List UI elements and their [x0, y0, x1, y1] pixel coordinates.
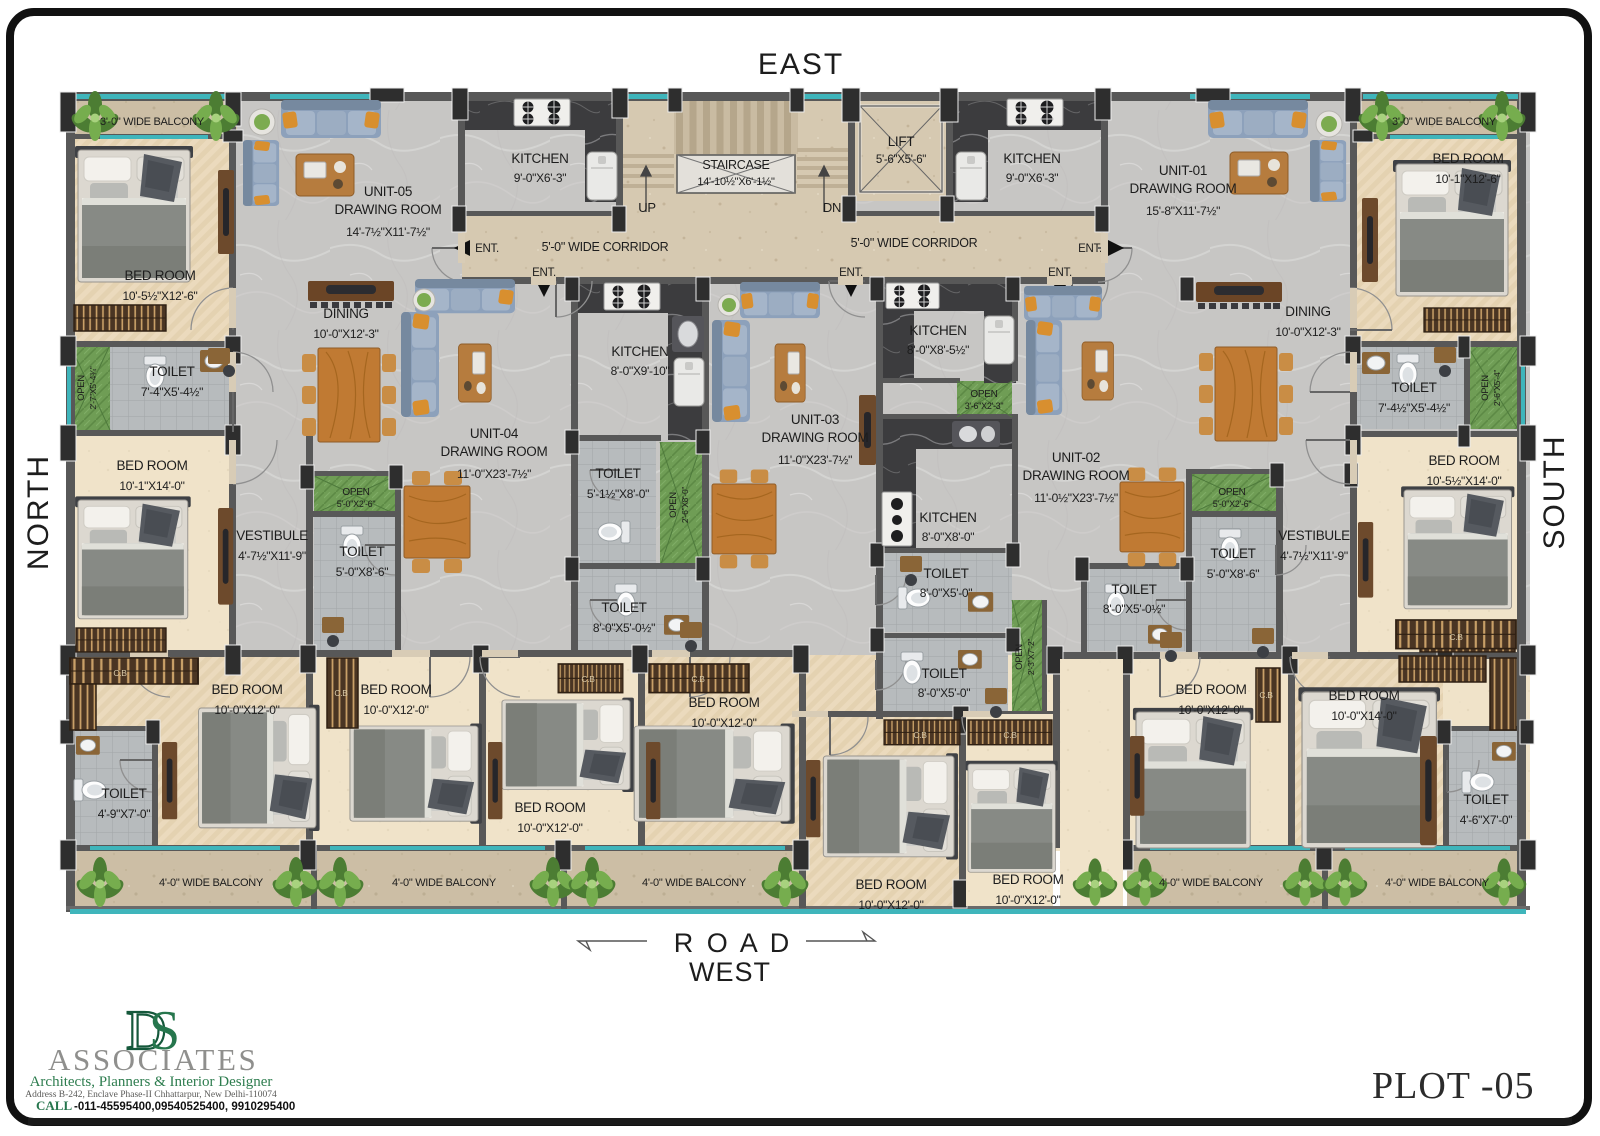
svg-text:5'-1½"X8'-0": 5'-1½"X8'-0": [587, 487, 649, 501]
svg-text:TOILET: TOILET: [923, 566, 968, 581]
svg-text:5'-0" WIDE CORRIDOR: 5'-0" WIDE CORRIDOR: [851, 236, 978, 250]
svg-text:11'-0"X23'-7½": 11'-0"X23'-7½": [457, 467, 531, 481]
svg-text:TOILET: TOILET: [1391, 380, 1436, 395]
svg-text:C.B: C.B: [113, 668, 127, 678]
svg-text:C.B: C.B: [1259, 690, 1273, 700]
svg-text:Architects, Planners & Interio: Architects, Planners & Interior Designer: [30, 1074, 273, 1090]
svg-text:8'-0"X9'-10": 8'-0"X9'-10": [611, 364, 670, 378]
svg-text:8'-0"X5'-0½": 8'-0"X5'-0½": [593, 621, 655, 635]
svg-text:BED ROOM: BED ROOM: [124, 268, 195, 283]
svg-text:10'-0"X12'-0": 10'-0"X12'-0": [691, 716, 756, 730]
svg-text:TOILET: TOILET: [1111, 582, 1156, 597]
svg-text:5'-6"X5'-6": 5'-6"X5'-6": [876, 154, 926, 166]
svg-text:BED ROOM: BED ROOM: [1328, 688, 1399, 703]
svg-text:TOILET: TOILET: [149, 364, 194, 379]
svg-text:BED ROOM: BED ROOM: [855, 877, 926, 892]
svg-text:BED ROOM: BED ROOM: [360, 682, 431, 697]
svg-text:UNIT-03: UNIT-03: [791, 412, 839, 427]
svg-text:DINING: DINING: [323, 306, 368, 321]
svg-text:TOILET: TOILET: [1210, 546, 1255, 561]
svg-text:UNIT-01: UNIT-01: [1159, 163, 1207, 178]
svg-text:10'-0"X12'-0": 10'-0"X12'-0": [363, 703, 428, 717]
svg-text:KITCHEN: KITCHEN: [511, 151, 568, 166]
svg-text:EAST: EAST: [758, 48, 844, 81]
svg-text:10'-0"X12'-0": 10'-0"X12'-0": [858, 898, 923, 912]
svg-text:C.B: C.B: [581, 674, 595, 684]
svg-text:C.B: C.B: [1449, 632, 1463, 642]
svg-text:KITCHEN: KITCHEN: [611, 344, 668, 359]
svg-text:BED ROOM: BED ROOM: [992, 872, 1063, 887]
svg-text:OPEN: OPEN: [668, 492, 679, 518]
svg-text:10'-1"X14'-0": 10'-1"X14'-0": [119, 479, 184, 493]
svg-text:BED ROOM: BED ROOM: [1428, 453, 1499, 468]
svg-text:10'-0"X12'-0": 10'-0"X12'-0": [995, 893, 1060, 907]
svg-text:BED ROOM: BED ROOM: [116, 458, 187, 473]
svg-text:UP: UP: [638, 200, 655, 215]
svg-text:C.B: C.B: [913, 730, 927, 740]
svg-text:C.B: C.B: [334, 688, 348, 698]
svg-text:BED ROOM: BED ROOM: [1432, 151, 1503, 166]
svg-text:8'-0"X5'-0½": 8'-0"X5'-0½": [1103, 602, 1165, 616]
svg-text:OPEN: OPEN: [1218, 487, 1245, 498]
svg-text:2'-6"X5'-4": 2'-6"X5'-4": [1492, 370, 1502, 407]
svg-text:SOUTH: SOUTH: [1538, 435, 1571, 550]
svg-text:4'-7½"X11'-9": 4'-7½"X11'-9": [1280, 549, 1348, 563]
svg-text:14'-7½"X11'-7½": 14'-7½"X11'-7½": [346, 225, 430, 239]
svg-text:15'-8"X11'-7½": 15'-8"X11'-7½": [1146, 204, 1220, 218]
svg-text:2'-3"X7'-2": 2'-3"X7'-2": [1026, 639, 1036, 676]
svg-text:10'-5½"X14'-0": 10'-5½"X14'-0": [1427, 474, 1502, 488]
svg-text:C.B: C.B: [1003, 730, 1017, 740]
svg-text:3'-0" WIDE BALCONY: 3'-0" WIDE BALCONY: [1392, 116, 1497, 128]
svg-text:ENT.: ENT.: [475, 243, 499, 255]
svg-text:9'-0"X6'-3": 9'-0"X6'-3": [514, 171, 567, 185]
svg-text:ASSOCIATES: ASSOCIATES: [48, 1042, 258, 1077]
svg-text:CALL: CALL: [36, 1098, 72, 1113]
svg-text:VESTIBULE: VESTIBULE: [236, 528, 308, 543]
svg-text:LIFT: LIFT: [888, 134, 915, 149]
svg-text:STAIRCASE: STAIRCASE: [702, 158, 769, 172]
svg-text:10'-0"X12'-3": 10'-0"X12'-3": [1275, 325, 1340, 339]
svg-text:10'-0"X12'-0": 10'-0"X12'-0": [214, 703, 279, 717]
svg-text:4'-9"X7'-0": 4'-9"X7'-0": [98, 807, 151, 821]
svg-text:WEST: WEST: [689, 957, 771, 987]
svg-text:9'-0"X6'-3": 9'-0"X6'-3": [1006, 171, 1059, 185]
svg-text:5'-0"X2'-6": 5'-0"X2'-6": [1213, 499, 1252, 509]
svg-text:10'-0"X12'-0": 10'-0"X12'-0": [517, 821, 582, 835]
svg-text:7'-4"X5'-4½": 7'-4"X5'-4½": [141, 385, 203, 399]
svg-text:4'-0" WIDE BALCONY: 4'-0" WIDE BALCONY: [1385, 877, 1490, 889]
svg-text:10'-0"X14'-0": 10'-0"X14'-0": [1331, 709, 1396, 723]
svg-text:BED ROOM: BED ROOM: [514, 800, 585, 815]
svg-text:PLOT -05: PLOT -05: [1372, 1065, 1534, 1107]
svg-text:R O A D: R O A D: [674, 928, 793, 958]
svg-text:4'-0" WIDE BALCONY: 4'-0" WIDE BALCONY: [642, 877, 747, 889]
svg-text:2'-6"X8'-0": 2'-6"X8'-0": [680, 487, 690, 524]
svg-text:UNIT-05: UNIT-05: [364, 184, 412, 199]
svg-text:TOILET: TOILET: [595, 466, 640, 481]
svg-text:4'-0" WIDE BALCONY: 4'-0" WIDE BALCONY: [392, 877, 497, 889]
svg-text:DRAWING ROOM: DRAWING ROOM: [762, 430, 869, 445]
svg-text:BED ROOM: BED ROOM: [211, 682, 282, 697]
svg-text:OPEN: OPEN: [1014, 644, 1025, 670]
svg-text:NORTH: NORTH: [22, 454, 55, 570]
svg-text:TOILET: TOILET: [339, 544, 384, 559]
svg-text:VESTIBULE: VESTIBULE: [1278, 528, 1350, 543]
svg-text:UNIT-02: UNIT-02: [1052, 450, 1100, 465]
svg-text:5'-0" WIDE CORRIDOR: 5'-0" WIDE CORRIDOR: [542, 240, 669, 254]
svg-text:11'-0½"X23'-7½": 11'-0½"X23'-7½": [1034, 491, 1118, 505]
svg-text:-011-45595400,09540525400, 991: -011-45595400,09540525400, 9910295400: [74, 1101, 295, 1113]
svg-text:OPEN: OPEN: [1480, 375, 1491, 401]
svg-text:TOILET: TOILET: [921, 666, 966, 681]
svg-text:14'-10½"X6'-1½": 14'-10½"X6'-1½": [697, 176, 775, 188]
svg-text:4'-7½"X11'-9": 4'-7½"X11'-9": [238, 549, 306, 563]
svg-text:UNIT-04: UNIT-04: [470, 426, 519, 441]
svg-text:10'-5½"X12'-6": 10'-5½"X12'-6": [123, 289, 198, 303]
svg-text:OPEN: OPEN: [76, 375, 87, 401]
svg-text:4'-0" WIDE BALCONY: 4'-0" WIDE BALCONY: [159, 877, 264, 889]
svg-text:OPEN: OPEN: [342, 487, 369, 498]
svg-text:8'-0"X5'-0": 8'-0"X5'-0": [920, 586, 973, 600]
svg-text:TOILET: TOILET: [1463, 792, 1508, 807]
svg-text:TOILET: TOILET: [601, 600, 646, 615]
svg-text:BED ROOM: BED ROOM: [688, 695, 759, 710]
svg-text:TOILET: TOILET: [101, 786, 146, 801]
svg-text:5'-0"X8'-6": 5'-0"X8'-6": [1207, 567, 1260, 581]
svg-text:8'-0"X8'-5½": 8'-0"X8'-5½": [907, 343, 969, 357]
svg-text:DN: DN: [823, 200, 841, 215]
svg-text:DRAWING ROOM: DRAWING ROOM: [441, 444, 548, 459]
svg-text:DINING: DINING: [1285, 304, 1330, 319]
svg-text:3'-6"X2'-3": 3'-6"X2'-3": [965, 401, 1004, 411]
svg-text:10'-0"X12'-3": 10'-0"X12'-3": [313, 327, 378, 341]
svg-text:BED ROOM: BED ROOM: [1175, 682, 1246, 697]
svg-text:5'-0"X2'-6": 5'-0"X2'-6": [337, 499, 376, 509]
svg-text:2'-7"X5'-4¾": 2'-7"X5'-4¾": [88, 366, 98, 409]
svg-text:DRAWING ROOM: DRAWING ROOM: [1130, 181, 1237, 196]
svg-text:KITCHEN: KITCHEN: [909, 323, 966, 338]
svg-text:8'-0"X8'-0": 8'-0"X8'-0": [922, 530, 975, 544]
svg-text:5'-0"X8'-6": 5'-0"X8'-6": [336, 565, 389, 579]
svg-text:KITCHEN: KITCHEN: [919, 510, 976, 525]
svg-text:10'-0"X12'-0": 10'-0"X12'-0": [1178, 703, 1243, 717]
svg-text:11'-0"X23'-7½": 11'-0"X23'-7½": [778, 453, 852, 467]
svg-text:ENT.: ENT.: [1078, 243, 1102, 255]
svg-text:7'-4½"X5'-4½": 7'-4½"X5'-4½": [1378, 401, 1450, 415]
svg-text:DRAWING ROOM: DRAWING ROOM: [1023, 468, 1130, 483]
svg-text:4'-0" WIDE BALCONY: 4'-0" WIDE BALCONY: [1159, 877, 1264, 889]
svg-text:10'-1"X12'-6": 10'-1"X12'-6": [1435, 172, 1500, 186]
svg-text:3'-0" WIDE BALCONY: 3'-0" WIDE BALCONY: [100, 116, 205, 128]
svg-text:DRAWING ROOM: DRAWING ROOM: [335, 202, 442, 217]
svg-text:OPEN: OPEN: [970, 389, 997, 400]
svg-text:KITCHEN: KITCHEN: [1003, 151, 1060, 166]
svg-text:8'-0"X5'-0": 8'-0"X5'-0": [918, 686, 971, 700]
svg-text:C.B: C.B: [691, 674, 705, 684]
svg-text:4'-6"X7'-0": 4'-6"X7'-0": [1460, 813, 1513, 827]
